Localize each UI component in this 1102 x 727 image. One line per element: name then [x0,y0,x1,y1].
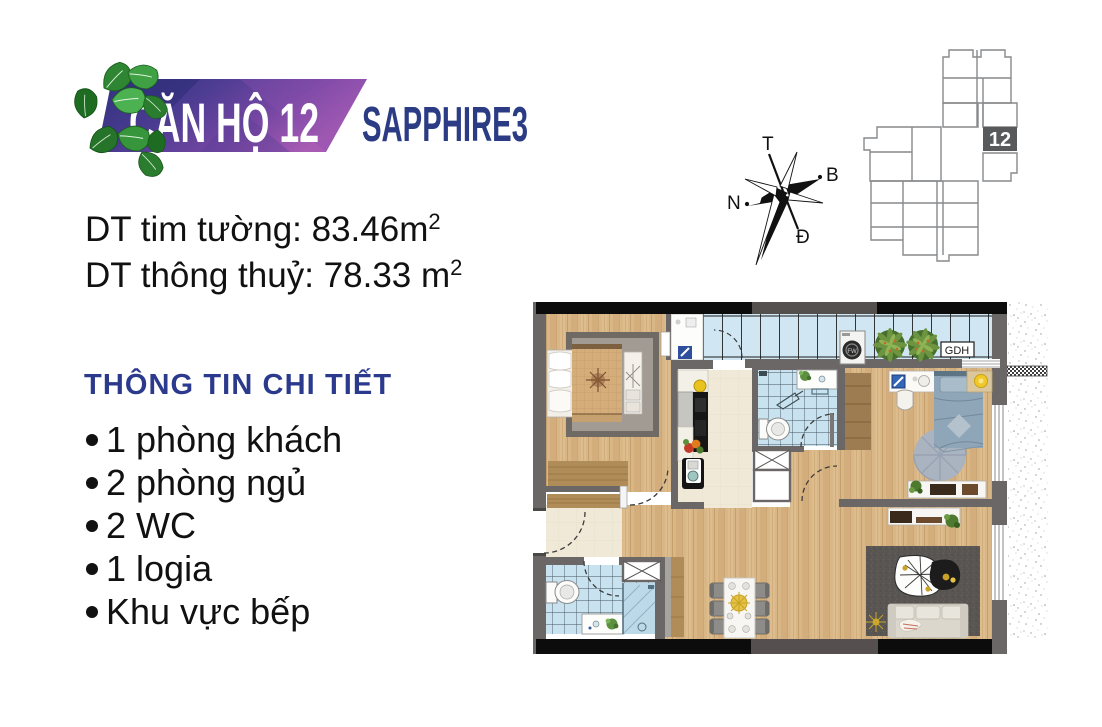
svg-text:N: N [727,193,741,214]
svg-text:T: T [762,134,774,155]
svg-text:2 phòng ngủ: 2 phòng ngủ [106,462,306,503]
svg-text:FW: FW [847,349,857,355]
svg-text:DT tim tường: 83.46m2: DT tim tường: 83.46m2 [85,209,441,249]
svg-text:1 phòng khách: 1 phòng khách [106,419,342,460]
svg-text:2 WC: 2 WC [106,505,196,546]
svg-text:B: B [826,165,839,186]
svg-text:1 logia: 1 logia [106,548,213,589]
svg-text:Đ: Đ [796,227,810,248]
svg-text:GDH: GDH [945,345,970,357]
svg-text:12: 12 [989,129,1011,151]
svg-text:THÔNG TIN CHI TIẾT: THÔNG TIN CHI TIẾT [84,367,392,401]
svg-text:DT thông thuỷ: 78.33 m2: DT thông thuỷ: 78.33 m2 [85,255,462,295]
svg-text:Khu vực bếp: Khu vực bếp [106,591,310,632]
svg-text:SAPPHIRE3: SAPPHIRE3 [362,98,528,152]
